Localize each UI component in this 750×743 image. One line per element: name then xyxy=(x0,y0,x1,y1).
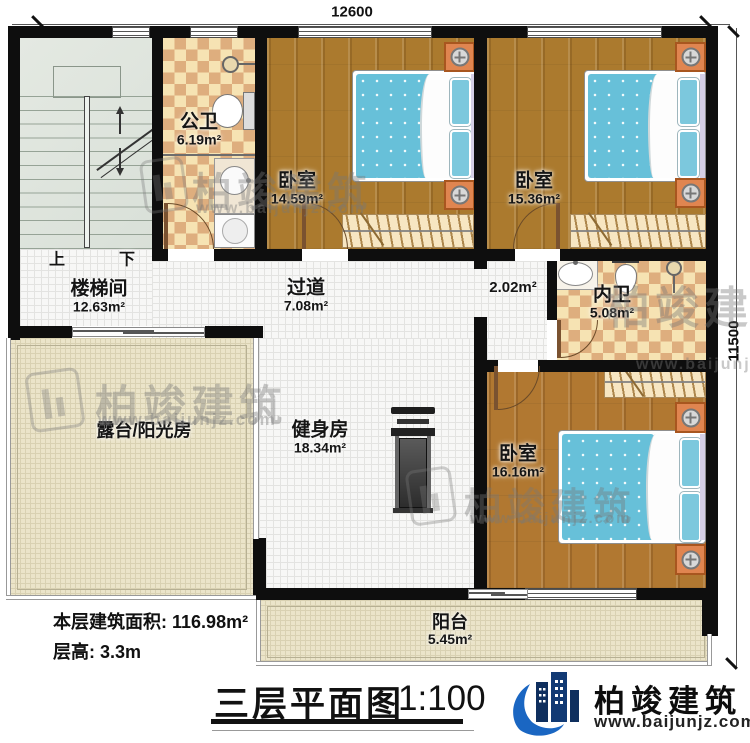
wall-balcony-right xyxy=(702,598,718,636)
floor-area-value: 116.98m² xyxy=(172,612,248,632)
wardrobe xyxy=(570,214,706,248)
room-name: 健身房 xyxy=(291,421,348,441)
room-area: 6.19m² xyxy=(177,133,221,148)
floor-height-text: 层高: 3.3m xyxy=(53,638,141,664)
bed-sheet-fold xyxy=(646,434,679,540)
room-label-stairwell: 楼梯间 12.63m² xyxy=(70,280,127,315)
nightstand xyxy=(675,402,706,433)
brand-logo-icon xyxy=(506,668,586,738)
stair-down-arrowhead xyxy=(116,168,124,176)
bed-pillow xyxy=(680,492,701,542)
wall-corridor-top xyxy=(214,249,302,261)
nightstand xyxy=(444,180,475,210)
washing-machine-drum xyxy=(222,218,248,244)
watermark-url: www.baijunjz.com xyxy=(636,356,750,374)
terrace-glass-wall-right xyxy=(253,338,259,539)
room-area: 2.02m² xyxy=(489,280,537,296)
bed-pillow xyxy=(678,78,699,126)
watermark-logo-icon xyxy=(138,155,189,215)
wall-bedroom1-bedroom2 xyxy=(474,26,487,261)
treadmill-handlebar xyxy=(391,407,435,414)
balcony-wall-right xyxy=(707,634,712,665)
door-gap xyxy=(302,249,348,261)
treadmill-console xyxy=(391,428,435,436)
window xyxy=(525,588,637,600)
wall-vestibule-stub xyxy=(474,249,487,269)
room-name: 公卫 xyxy=(177,113,221,133)
wall-corridor-top xyxy=(348,249,515,261)
stair-up-arrow xyxy=(119,112,121,134)
stair-up-label: 上 xyxy=(49,253,65,270)
wall-terrace-gym xyxy=(253,538,266,600)
stair-up-arrowhead xyxy=(116,106,124,114)
terrace-glass-wall-left xyxy=(6,338,11,600)
bed-pillow xyxy=(450,78,471,126)
balcony-wall-bottom xyxy=(256,661,712,666)
bed-pillow xyxy=(680,438,701,488)
terrace-sliding-door xyxy=(72,327,205,337)
dimension-line-top xyxy=(12,24,730,25)
nightstand xyxy=(675,178,706,208)
room-label-gym: 健身房 18.34m² xyxy=(291,421,348,456)
room-name: 楼梯间 xyxy=(70,280,127,300)
wall-stair-bath xyxy=(152,26,163,261)
room-name: 过道 xyxy=(284,279,328,299)
window xyxy=(527,26,662,38)
lamp-icon xyxy=(681,550,700,569)
basin-sink xyxy=(558,262,593,286)
window xyxy=(298,26,432,38)
gym-floor xyxy=(259,338,474,588)
room-label-public-bath: 公卫 6.19m² xyxy=(177,113,221,148)
room-label-bedroom3: 卧室 16.16m² xyxy=(492,445,544,480)
floor-area-label: 本层建筑面积: xyxy=(53,612,167,632)
floor-area-text: 本层建筑面积: 116.98m² xyxy=(53,608,248,634)
balcony-sliding-door xyxy=(468,589,528,599)
wall-corridor-top xyxy=(560,249,706,261)
balcony-wall-left xyxy=(256,600,261,666)
stair-center-rail xyxy=(84,96,90,248)
title-underline-thick xyxy=(211,719,463,724)
wall-corridor-top xyxy=(152,249,168,261)
stair-down-arrow xyxy=(119,148,121,170)
room-area: 12.63m² xyxy=(70,300,127,315)
watermark-logo-icon xyxy=(404,465,457,527)
terrace-glass-wall-bottom xyxy=(6,595,256,600)
wall-terrace-top xyxy=(8,326,72,338)
floor-plan: 12600 11500 xyxy=(0,0,750,743)
shower-arm xyxy=(238,63,255,65)
drawing-scale: 1:100 xyxy=(398,679,486,719)
room-name: 卧室 xyxy=(508,172,560,192)
room-area: 7.08m² xyxy=(284,299,328,314)
floor-height-value: 3.3m xyxy=(100,642,141,662)
room-name: 阳台 xyxy=(428,613,472,632)
wall-gym-right xyxy=(474,317,487,588)
toilet-tank xyxy=(243,92,255,130)
room-area: 15.36m² xyxy=(508,192,560,207)
bed-headboard xyxy=(700,74,705,178)
title-underline-thin xyxy=(212,730,474,731)
stair-down-label: 下 xyxy=(119,253,135,270)
wardrobe xyxy=(342,214,474,248)
lamp-icon xyxy=(681,184,700,203)
door-gap xyxy=(515,249,560,261)
watermark-brand: 柏竣建筑 xyxy=(606,272,750,336)
door-gap xyxy=(547,320,557,358)
watermark-logo-icon xyxy=(24,367,86,434)
room-area: 18.34m² xyxy=(291,441,348,456)
brand-url: www.baijunjz.com xyxy=(594,712,750,732)
vestibule-floor xyxy=(487,338,547,360)
lamp-icon xyxy=(450,48,469,67)
lamp-icon xyxy=(450,186,469,205)
room-label-corridor: 过道 7.08m² xyxy=(284,279,328,314)
floor-height-label: 层高: xyxy=(53,642,95,662)
bed-sheet-fold xyxy=(648,74,679,178)
shower-head-icon xyxy=(222,56,239,73)
watermark-url: www.baijunjz.com xyxy=(98,410,277,430)
stair-landing-outline xyxy=(53,66,121,98)
room-area: 5.45m² xyxy=(428,632,472,647)
room-label-balcony: 阳台 5.45m² xyxy=(428,613,472,647)
wall-terrace-top xyxy=(205,326,263,338)
bed-pillow xyxy=(678,130,699,178)
window xyxy=(190,26,238,38)
lamp-icon xyxy=(681,48,700,67)
wall-bath-bedroom1 xyxy=(255,26,267,261)
wall-left xyxy=(8,26,20,340)
bed-sheet-fold xyxy=(420,74,452,178)
balcony-inner-outline xyxy=(267,606,705,658)
door-leaf xyxy=(556,203,560,249)
watermark-url: www.baijunjz.com xyxy=(470,510,631,527)
watermark-url: www.baijunjz.com xyxy=(196,200,366,218)
door-gap xyxy=(168,249,214,261)
window xyxy=(112,26,150,38)
dimension-tick xyxy=(727,25,740,38)
bed-pillow xyxy=(450,130,471,178)
treadmill-handlebar xyxy=(397,419,429,424)
nightstand xyxy=(675,544,706,575)
nightstand xyxy=(444,42,475,72)
dimension-top-label: 12600 xyxy=(331,4,373,21)
room-label-bedroom2: 卧室 15.36m² xyxy=(508,172,560,207)
lamp-icon xyxy=(681,408,700,427)
bed-headboard xyxy=(700,434,705,540)
room-name: 卧室 xyxy=(492,445,544,465)
room-label-vestibule: 2.02m² xyxy=(489,280,537,296)
nightstand xyxy=(675,42,706,72)
